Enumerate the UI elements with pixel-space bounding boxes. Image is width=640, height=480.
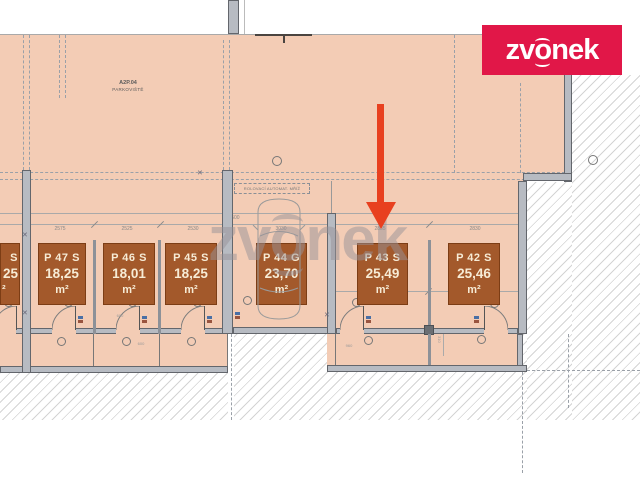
door-tag-blue (78, 316, 83, 319)
stall-box-p42: P 42 S 25,46 m² (448, 243, 500, 305)
x-marker: ✕ (22, 310, 28, 317)
door-tag-red (474, 320, 479, 323)
door-tag (366, 316, 371, 323)
x-marker: ✕ (22, 232, 28, 239)
cell-dim-label: 600 (133, 341, 149, 346)
stall-box-p47: P 47 S 18,25 m² (38, 243, 86, 305)
cell-dim-label-vertical: 310 (437, 336, 442, 343)
door-leaf (363, 306, 364, 330)
door-leaf (484, 306, 485, 330)
cell-dim-label: 960 (341, 343, 357, 348)
cell-partition (159, 334, 160, 366)
stall-label: P 46 S (111, 252, 147, 264)
watermark-part: zv (208, 205, 269, 274)
cell-marker-circle (187, 337, 196, 346)
dimension-label: 2575 (44, 226, 76, 232)
dashed-exterior-line (522, 372, 523, 473)
stall-area: 25 (1, 267, 19, 281)
dashed-exterior-line (527, 370, 640, 371)
zone-label: A2P.04 PARKOVIŠTĚ (100, 80, 156, 93)
dashed-grid-line (65, 35, 66, 98)
dashed-grid-line (229, 40, 230, 170)
dashed-boundary-line (0, 179, 565, 180)
door-tag-blue (366, 316, 371, 319)
column-marker-circle (588, 155, 598, 165)
x-marker: ✕ (324, 312, 330, 319)
hatch-region-right-outer (572, 75, 640, 420)
wall-stall-divider (158, 240, 161, 334)
stall-label: S (1, 252, 19, 264)
logo-o-glyph: o (534, 36, 551, 65)
door-leaf (139, 306, 140, 330)
door-arc (340, 306, 364, 330)
grille-label: ROLOVACÍ AUTOMAT. MŘÍŽ (244, 186, 300, 191)
dashed-grid-line (29, 35, 30, 170)
stall-unit: ² (1, 284, 19, 296)
cell-partition (335, 334, 336, 365)
stall-unit: m² (55, 284, 68, 296)
wall-bottom-left (0, 366, 228, 373)
cell-dim-line (443, 334, 444, 356)
stall-area: 18,25 (174, 267, 208, 281)
stall-label: P 42 S (456, 252, 492, 264)
door-tag-red (78, 320, 83, 323)
cell-marker-circle (57, 337, 66, 346)
wall-top-stub (228, 0, 239, 34)
stall-unit: m² (184, 284, 197, 296)
wall-bottom-right (327, 365, 527, 372)
logo-part: nek (551, 34, 598, 66)
door-arc (484, 306, 508, 330)
zone-code: A2P.04 (100, 80, 156, 87)
stall-unit: m² (376, 284, 389, 296)
stall-area: 18,01 (112, 267, 146, 281)
x-marker: ✕ (197, 170, 203, 177)
highlight-arrow-shaft (377, 104, 384, 204)
wall-right-lower (518, 181, 527, 334)
dashed-grid-line (59, 35, 60, 98)
door-tag (207, 316, 212, 323)
stall-label: P 45 S (173, 252, 209, 264)
dashed-exterior-line (231, 334, 232, 420)
top-stub-line (244, 0, 245, 34)
door-arc (0, 306, 17, 330)
logo-part: zv (505, 34, 534, 66)
brand-logo-text: zvonek (505, 36, 598, 65)
door-arc (181, 306, 205, 330)
dimension-label: 2830 (459, 226, 491, 232)
wall-pillar-left (22, 170, 31, 373)
wall-step (523, 173, 572, 181)
top-gate-tick (283, 34, 285, 43)
watermark-o-glyph: o (269, 209, 305, 271)
cell-marker-circle (364, 336, 373, 345)
zone-name: PARKOVIŠTĚ (100, 87, 156, 93)
brand-logo: zvonek (482, 25, 622, 75)
door-tag-blue (142, 316, 147, 319)
dashed-grid-line (23, 35, 24, 170)
door-leaf (75, 306, 76, 330)
stall-label: P 47 S (44, 252, 80, 264)
highlight-arrow-head (366, 202, 396, 229)
wall-stall-divider (93, 240, 96, 334)
door-tag (474, 316, 479, 323)
stall-area: 25,46 (457, 267, 491, 281)
dashed-grid-line (454, 35, 455, 173)
wall-stall-divider (428, 240, 431, 326)
dimension-label: 2530 (177, 226, 209, 232)
door-tag-blue (207, 316, 212, 319)
door-leaf (16, 306, 17, 330)
door-tag-red (142, 320, 147, 323)
door-tag-red (235, 316, 240, 319)
door-tag (78, 316, 83, 323)
column-marker-circle (272, 156, 282, 166)
stall-box-p46: P 46 S 18,01 m² (103, 243, 155, 305)
door-tag-red (366, 320, 371, 323)
door-tag-red (207, 320, 212, 323)
door-tag (142, 316, 147, 323)
dimension-label: 2525 (111, 226, 143, 232)
hatch-region-right-inner (527, 182, 572, 420)
door-arc (52, 306, 76, 330)
dashed-grid-line (223, 40, 224, 170)
cell-marker-circle (122, 337, 131, 346)
door-leaf (204, 306, 205, 330)
stall-unit: m² (467, 284, 480, 296)
grille-box: ROLOVACÍ AUTOMAT. MŘÍŽ (234, 183, 310, 194)
wall-right-cell (517, 334, 523, 366)
floorplan-canvas: 2575 2525 2530 3030 2835 2830 7500 (0, 0, 640, 480)
cell-partition (227, 334, 228, 366)
dashed-exterior-line (568, 334, 569, 408)
door-arc (116, 306, 140, 330)
door-tag-blue (474, 316, 479, 319)
wall-front-p44 (233, 327, 336, 334)
stall-area: 18,25 (45, 267, 79, 281)
cell-marker-circle (477, 335, 486, 344)
cell-partition (93, 334, 94, 366)
dashed-boundary-line (0, 172, 565, 173)
stall-box-partial: S 25 ² (0, 243, 20, 305)
cell-partition (428, 334, 431, 365)
door-tag (235, 312, 240, 319)
dashed-grid-line (520, 83, 521, 173)
door-tag-blue (235, 312, 240, 315)
stall-unit: m² (122, 284, 135, 296)
door-dim-label: 600 (113, 313, 127, 318)
